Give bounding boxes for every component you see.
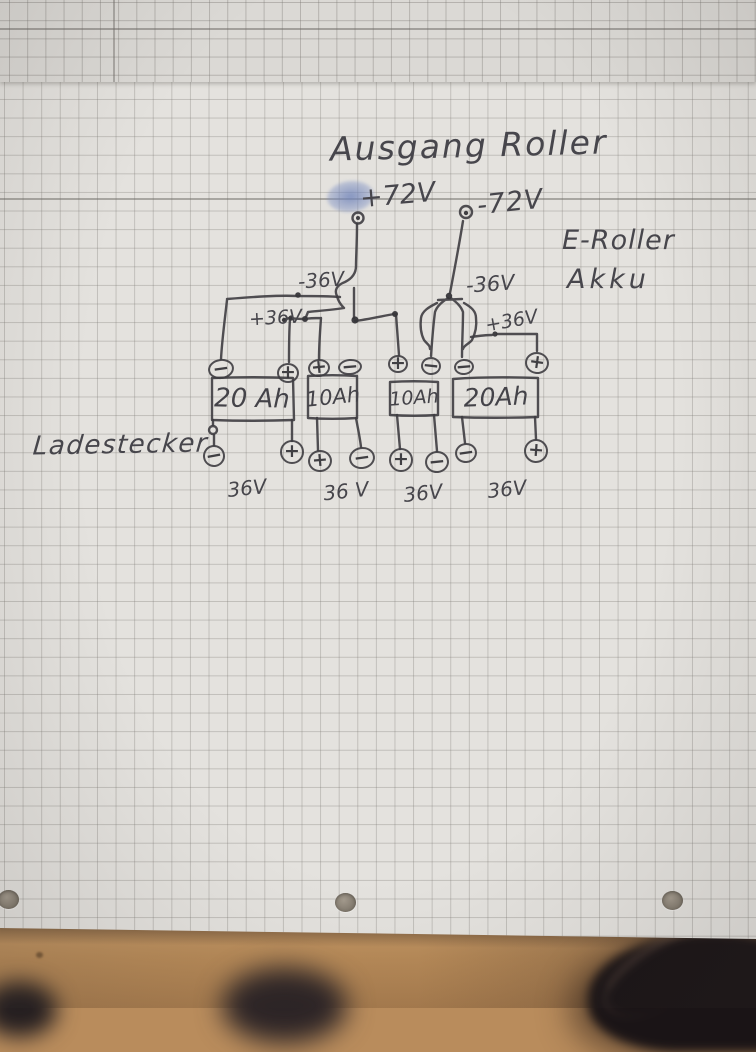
minus-sign: −	[456, 441, 475, 463]
wire-midpoint	[354, 288, 399, 355]
terminal-b4-top-minus: −	[453, 358, 474, 376]
label-akku: Akku	[567, 264, 650, 295]
junction-dot	[446, 293, 452, 299]
label-plus36-left: +36V	[248, 306, 302, 331]
terminal-b2-top-minus: −	[337, 358, 362, 376]
title-ausgang-roller: Ausgang Roller	[330, 122, 608, 168]
junction-dot	[351, 316, 358, 323]
terminal-b1-top-plus: +	[277, 363, 299, 383]
battery-voltage-1: 36V	[226, 474, 267, 502]
plus-sign: +	[393, 450, 409, 469]
wire-plus36-right	[471, 334, 537, 351]
notebook-page: Ausgang Roller +72V -72V E-Roller Akku -…	[0, 0, 756, 941]
label-minus36-right: -36V	[465, 270, 515, 297]
plus-sign: +	[527, 440, 544, 460]
shadow-blob	[222, 968, 347, 1043]
minus-sign: −	[422, 354, 441, 376]
minus-sign: −	[455, 355, 473, 376]
plus-sign: +	[390, 354, 406, 373]
minus-sign: −	[204, 444, 224, 467]
label-ladestecker: Ladestecker	[32, 428, 210, 461]
terminal-b2-top-plus: +	[307, 358, 331, 378]
plus-sign: +	[310, 357, 328, 378]
charger-lead	[213, 420, 214, 445]
label-plus72v: +72V	[359, 177, 437, 214]
battery-voltage-2: 36 V	[322, 477, 370, 506]
plus-sign: +	[280, 363, 296, 382]
connector-plug	[421, 298, 477, 357]
minus-sign: −	[428, 450, 447, 472]
battery-capacity-3: 10Ah	[389, 385, 440, 410]
battery-capacity-4: 20Ah	[463, 381, 529, 412]
minus-sign: −	[352, 446, 371, 468]
battery-voltage-3: 36V	[402, 479, 443, 507]
minus-sign: −	[211, 357, 230, 379]
label-minus36-left: -36V	[297, 266, 345, 293]
bottom-stubs	[292, 415, 536, 451]
battery-capacity-1: 20 Ah	[214, 383, 290, 414]
battery-voltage-4: 36V	[486, 475, 527, 503]
photo-scene: Ausgang Roller +72V -72V E-Roller Akku -…	[0, 0, 756, 1008]
plus-sign: +	[284, 442, 300, 461]
terminal-b1-bottom-plus: +	[280, 440, 304, 464]
label-e-roller: E-Roller	[562, 225, 675, 256]
plus-sign: +	[528, 351, 546, 372]
junction-dot	[392, 311, 398, 317]
wire-minus72	[450, 221, 463, 293]
minus-sign: −	[341, 355, 359, 376]
wood-speck	[36, 952, 43, 958]
charger-ring	[209, 426, 217, 434]
terminal-b3-top-minus: −	[420, 356, 442, 376]
terminal-b3-top-plus: +	[388, 355, 408, 373]
junction-dot	[302, 316, 308, 322]
plus-sign: +	[311, 450, 329, 470]
terminal-b3-bottom-plus: +	[389, 448, 413, 472]
